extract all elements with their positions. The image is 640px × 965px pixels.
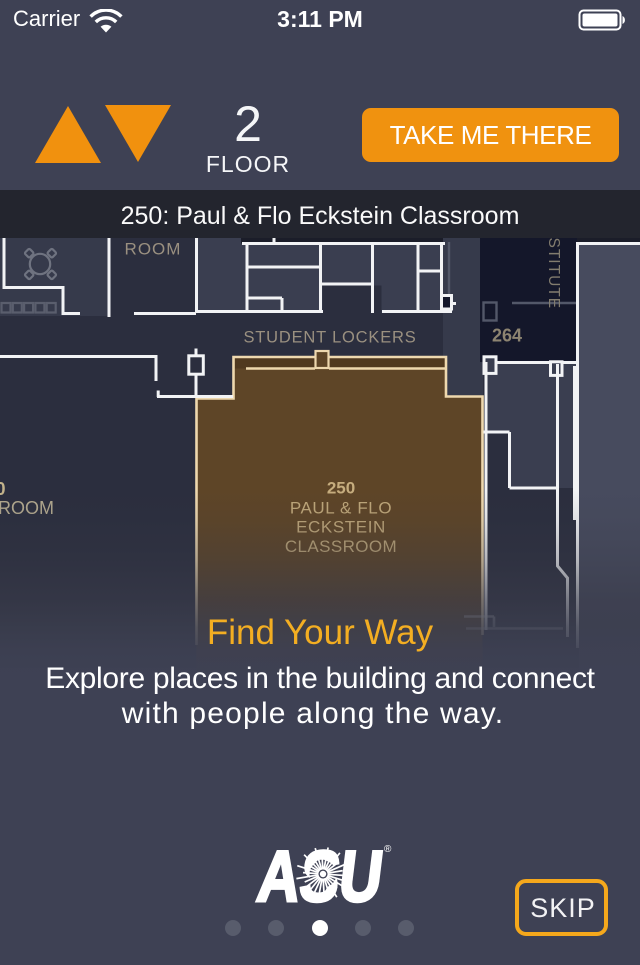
svg-text:®: ®: [384, 844, 392, 855]
svg-text:ROOM: ROOM: [125, 240, 182, 259]
svg-text:STUDENT LOCKERS: STUDENT LOCKERS: [243, 329, 416, 347]
svg-text:264: 264: [492, 326, 522, 346]
